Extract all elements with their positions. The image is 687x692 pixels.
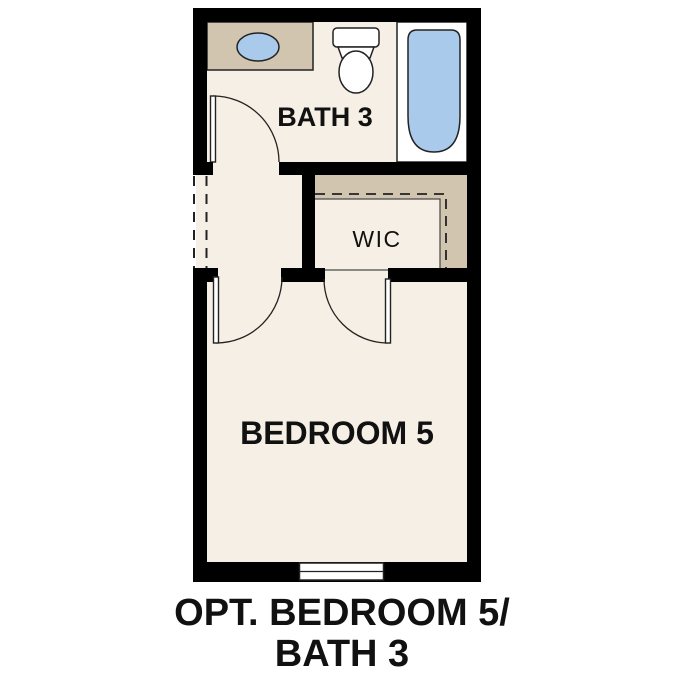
bathtub-icon <box>408 30 460 152</box>
wall-bath-south-stub <box>193 162 213 175</box>
wall-left-upper <box>193 8 207 168</box>
window-icon <box>300 563 384 580</box>
wic-room-label: WIC <box>352 226 401 252</box>
wall-top <box>193 8 481 22</box>
wall-hall-wic <box>302 162 315 282</box>
wall-right <box>467 8 481 582</box>
bedroom-room-label: BEDROOM 5 <box>240 415 434 451</box>
caption-line-1: OPT. BEDROOM 5/ <box>174 592 510 634</box>
caption-line-2: BATH 3 <box>275 633 409 675</box>
wall-left-lower <box>193 268 207 582</box>
sink-basin-icon <box>237 33 279 61</box>
floor-plan-page: BATH 3 WIC <box>0 0 687 687</box>
bath-room-label: BATH 3 <box>277 102 373 132</box>
floor-plan: BATH 3 WIC <box>0 0 687 687</box>
wall-bedroom-top-right <box>388 268 467 282</box>
wic-closet: WIC <box>312 174 467 270</box>
wall-bedroom-top-mid <box>281 268 325 282</box>
